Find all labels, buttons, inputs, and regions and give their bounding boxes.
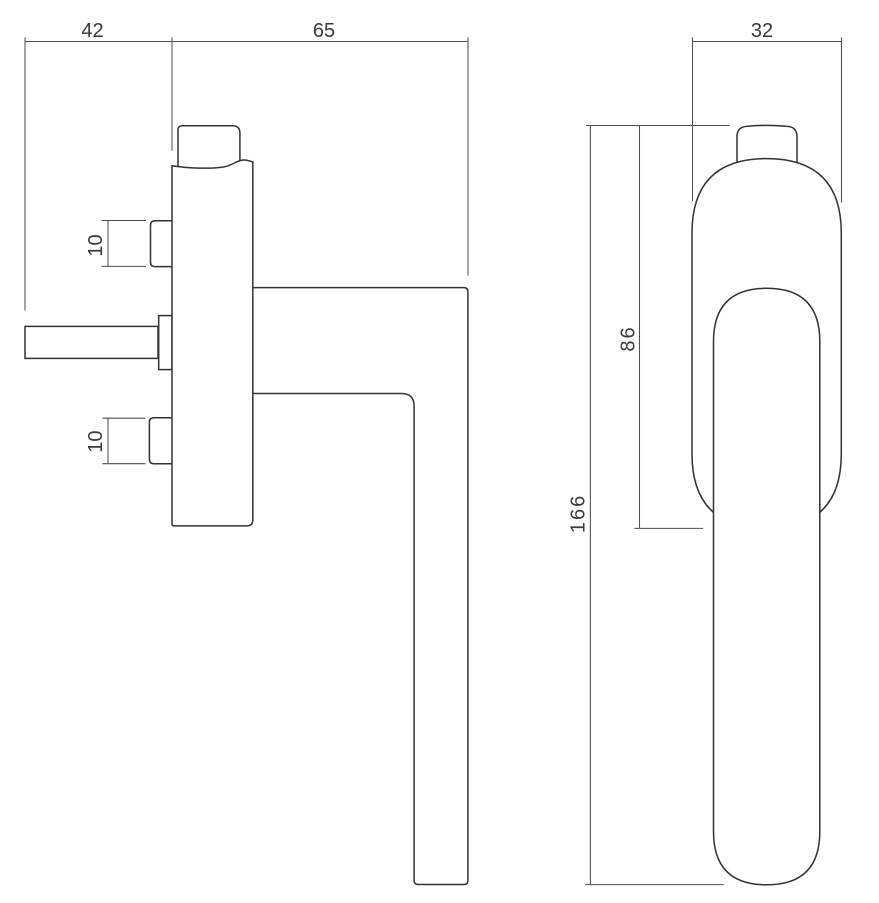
svg-text:10: 10 [85,234,107,256]
svg-text:32: 32 [751,20,773,42]
svg-text:42: 42 [81,20,103,42]
svg-text:65: 65 [313,20,335,42]
svg-text:166: 166 [568,494,590,533]
svg-text:86: 86 [618,325,640,351]
svg-text:10: 10 [85,430,107,452]
